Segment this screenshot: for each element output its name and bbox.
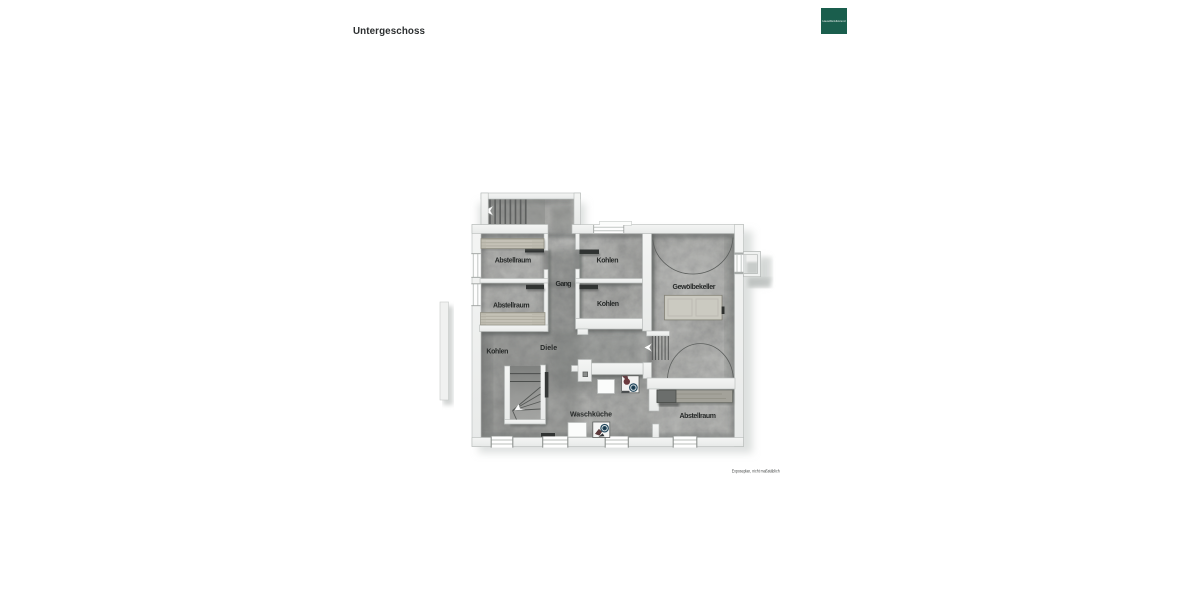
svg-text:Kohlen: Kohlen bbox=[597, 257, 619, 264]
svg-text:Kohlen: Kohlen bbox=[597, 301, 619, 308]
svg-text:Abstellraum: Abstellraum bbox=[495, 257, 532, 264]
svg-text:Kohlen: Kohlen bbox=[486, 348, 508, 355]
svg-text:Abstellraum: Abstellraum bbox=[679, 413, 716, 420]
svg-text:Waschküche: Waschküche bbox=[570, 411, 612, 418]
svg-text:Gang: Gang bbox=[556, 281, 572, 288]
svg-text:Diele: Diele bbox=[540, 345, 557, 352]
svg-text:Exposeplan, nicht maßstäblich: Exposeplan, nicht maßstäblich bbox=[732, 468, 780, 473]
svg-text:Gewölbekeller: Gewölbekeller bbox=[673, 284, 716, 291]
svg-text:Abstellraum: Abstellraum bbox=[493, 302, 530, 309]
